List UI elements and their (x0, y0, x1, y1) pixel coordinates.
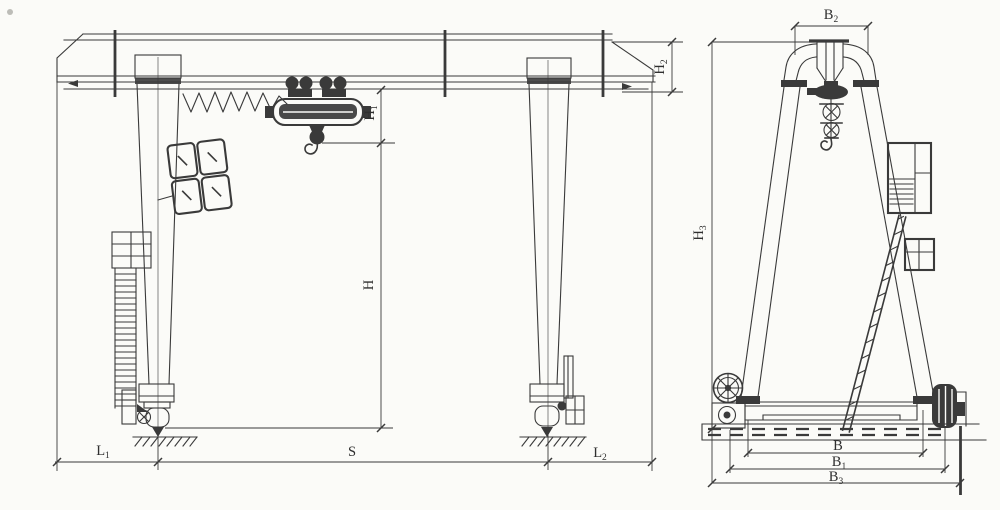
dim-label-L2: L2 (593, 445, 607, 463)
dim-label-L1: L1 (96, 443, 110, 461)
side-hoist (807, 81, 848, 150)
ground-hatch-left (133, 437, 197, 446)
ground-hatch-right (520, 437, 586, 446)
right-leg (527, 58, 584, 437)
access-ladder (843, 215, 906, 432)
side-hook (821, 139, 832, 150)
ladder (112, 232, 151, 408)
gantry-crane-technical-drawing: L1 S L2 H1 H H2 (0, 0, 1000, 510)
dim-label-S: S (348, 444, 356, 460)
scan-artifact (7, 9, 13, 15)
end-carriage (702, 374, 986, 496)
side-view: B2 H3 B B1 B3 (691, 7, 986, 495)
front-dimension-lines (53, 38, 683, 471)
main-girder (57, 30, 655, 97)
front-view: L1 S L2 H1 H H2 (53, 30, 683, 471)
dim-label-H2: H2 (652, 59, 670, 74)
box-bracket (158, 196, 172, 200)
dim-label-H3: H3 (691, 225, 709, 240)
dim-label-H: H (361, 279, 377, 290)
rail-buffer-left (68, 80, 78, 87)
hoist-trolley (265, 77, 371, 154)
electrical-cabinets (888, 143, 934, 270)
dim-label-B2: B2 (824, 7, 839, 25)
drawing-page: L1 S L2 H1 H H2 (0, 0, 1000, 510)
dim-label-B: B (833, 438, 843, 454)
